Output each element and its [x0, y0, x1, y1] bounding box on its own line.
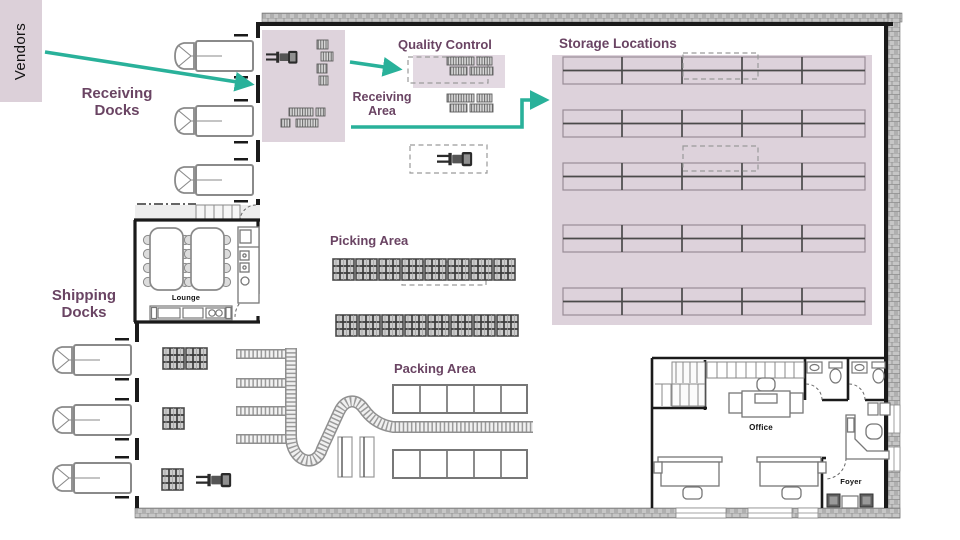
shipping-trucks	[53, 345, 131, 493]
truck-icon	[175, 106, 253, 136]
floor-plan-drawing	[0, 0, 960, 540]
forklift-icon	[196, 473, 231, 487]
truck-icon	[53, 345, 131, 375]
warehouse-floor-plan: Vendors Receiving Docks Quality Control …	[0, 0, 960, 540]
locker-row	[707, 362, 804, 378]
office-block	[652, 358, 890, 508]
vendors-box: Vendors	[0, 0, 42, 102]
bathrooms	[807, 362, 885, 383]
foyer-furniture	[827, 494, 873, 508]
receiving-to-storage-arrow	[351, 100, 545, 127]
receiving-to-qc-arrow	[350, 62, 398, 69]
truck-icon	[53, 463, 131, 493]
forklift-icon	[437, 152, 472, 166]
truck-icon	[53, 405, 131, 435]
truck-icon	[175, 165, 253, 195]
side-table-chairs	[868, 403, 890, 415]
staff-desks	[654, 457, 826, 499]
shipping-pallets	[162, 348, 207, 490]
receiving-trucks	[175, 41, 253, 195]
conveyor-spurs	[236, 354, 288, 439]
manager-desk	[729, 378, 803, 417]
vendors-label: Vendors	[13, 22, 30, 79]
picking-pallets	[333, 259, 518, 336]
lounge-bench	[150, 306, 232, 320]
corner-desk	[846, 415, 889, 459]
lounge-room	[134, 220, 260, 322]
office-stairs	[655, 362, 705, 406]
pallet-rails	[338, 437, 374, 477]
lounge-counter	[238, 227, 259, 303]
truck-icon	[175, 41, 253, 71]
